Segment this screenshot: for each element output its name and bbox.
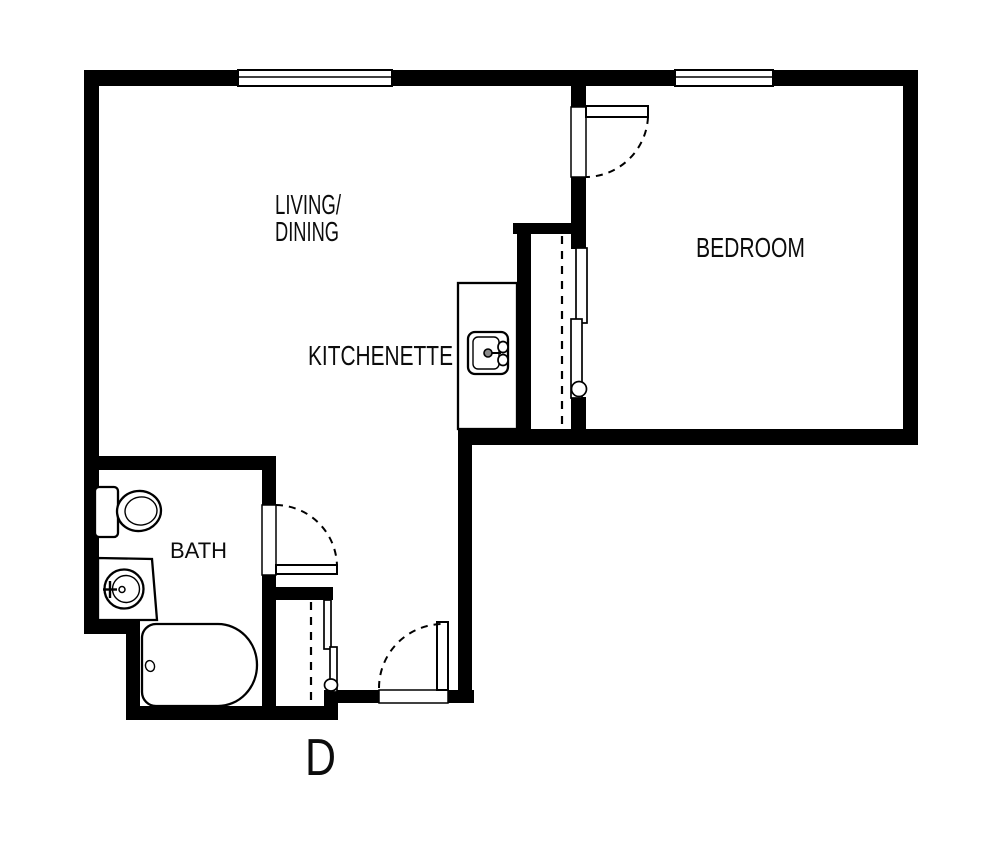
toilet-icon: [95, 487, 163, 537]
window-frame: [238, 70, 392, 86]
faucet-dot: [119, 587, 125, 593]
bathtub-icon: [142, 624, 257, 706]
bedroom-window: [675, 70, 773, 86]
wall-hall-right: [458, 429, 472, 703]
wall-jog-vertical: [126, 620, 140, 720]
wall-bedroom-bottom: [458, 429, 918, 445]
window-frame: [675, 70, 773, 86]
wall-divider-mid: [571, 177, 586, 249]
floor-plan-svg: LIVING/ DINING KITCHENETTE BEDROOM BATH …: [0, 0, 1000, 845]
bath-door: [262, 505, 337, 575]
door-jamb: [262, 505, 276, 575]
sliding-door-panel-upper: [324, 600, 331, 649]
bedroom-door: [571, 106, 648, 177]
bedroom-label: BEDROOM: [696, 232, 805, 263]
floor-plan-canvas: LIVING/ DINING KITCHENETTE BEDROOM BATH …: [0, 0, 1000, 845]
toilet-tank: [95, 487, 118, 537]
wall-bath-top: [84, 456, 276, 470]
wall-top: [84, 70, 918, 86]
faucet-knob-top: [498, 342, 508, 353]
door-opening: [379, 690, 448, 703]
sliding-door-handle: [572, 382, 587, 397]
unit-label: D: [305, 729, 336, 787]
bathroom-sink-icon: [98, 558, 157, 620]
kitchenette-counter: [458, 283, 517, 429]
wall-bath-right-upper: [262, 456, 276, 505]
wall-divider-top: [571, 86, 586, 108]
door-leaf: [276, 565, 337, 574]
wall-kitchenette-closet-divider: [517, 223, 531, 429]
door-jamb: [571, 107, 586, 177]
faucet-knob-bottom: [498, 355, 508, 366]
entry-door: [379, 622, 448, 703]
door-leaf: [437, 622, 448, 690]
kitchenette-label: KITCHENETTE: [308, 340, 453, 371]
sliding-door-handle: [325, 679, 338, 691]
wall-right: [903, 70, 918, 445]
tub-outline: [142, 624, 257, 706]
sliding-door-panel-upper: [576, 248, 587, 323]
wall-bottom-tub-section: [126, 706, 338, 720]
door-swing-arc: [276, 505, 337, 566]
door-swing-arc: [586, 117, 648, 177]
living-window: [238, 70, 392, 86]
bath-label: BATH: [170, 538, 227, 563]
door-leaf: [586, 106, 648, 117]
wall-hall-closet-top: [262, 587, 333, 600]
wall-closet-right-bottom: [571, 397, 586, 429]
kitchen-sink-icon: [468, 332, 508, 374]
living-dining-label-line2: DINING: [275, 216, 339, 247]
door-swing-arc: [379, 624, 443, 688]
wall-left: [84, 70, 99, 634]
hall-closet: [311, 600, 338, 704]
faucet-drain: [484, 349, 492, 357]
toilet-bowl: [115, 488, 164, 533]
